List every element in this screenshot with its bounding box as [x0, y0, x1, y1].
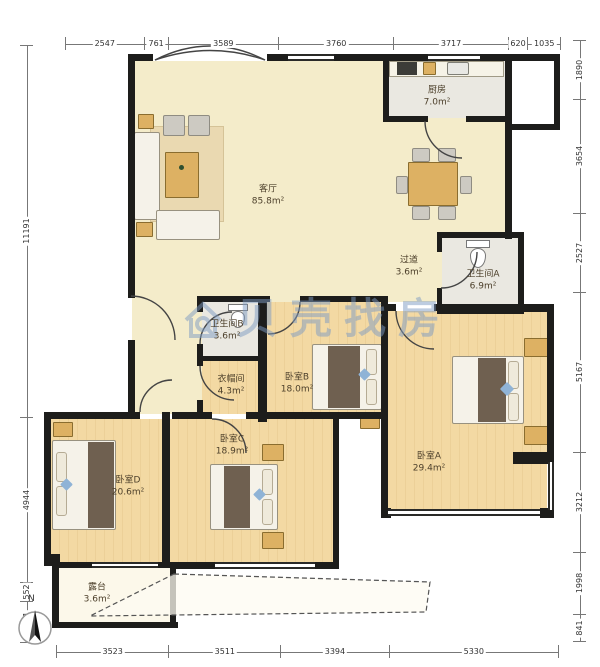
wall: [383, 54, 389, 122]
wall: [333, 412, 339, 569]
dining-chair: [438, 206, 456, 220]
room-name: 卫生间B: [210, 319, 243, 331]
dimension-segment: 2527: [573, 213, 586, 292]
room-area: 6.9m²: [466, 281, 499, 293]
wall: [44, 412, 51, 560]
dimension-segment: 1035: [527, 37, 560, 50]
dimension-strip-right: 189036542527516732121998841: [573, 40, 586, 642]
bed-pillow: [366, 379, 377, 405]
room-area: 3.6m²: [396, 267, 423, 279]
dimension-segment: 3212: [573, 452, 586, 552]
bed-blanket: [328, 346, 360, 408]
armchair: [163, 115, 185, 136]
wall: [518, 232, 524, 314]
wall: [388, 116, 428, 122]
wall: [258, 296, 267, 422]
dimension-segment: 3394: [280, 645, 388, 658]
wall: [44, 412, 140, 419]
sofa-long: [134, 132, 160, 220]
room-area: 3.6m²: [84, 594, 111, 606]
room-area: 85.8m²: [252, 196, 284, 208]
dimension-value: 2547: [93, 40, 117, 48]
room-label-bedroom-c: 卧室C 18.9m²: [216, 434, 248, 457]
dimension-segment: 3589: [168, 37, 278, 50]
wall: [381, 296, 388, 428]
room-area: 29.4m²: [413, 463, 445, 475]
dimension-value: 5330: [462, 648, 486, 656]
bed-blanket: [224, 466, 250, 528]
room-name: 露台: [84, 582, 111, 594]
wall: [197, 296, 267, 302]
dining-chair: [396, 176, 408, 194]
dimension-segment: 3654: [573, 99, 586, 213]
dimension-strip-top: 25477613589376037176201035: [65, 37, 561, 50]
window: [428, 54, 480, 61]
terrace-floor: [59, 568, 170, 622]
side-table: [136, 222, 153, 237]
wall: [437, 238, 442, 252]
room-name: 过道: [396, 255, 423, 267]
dimension-value: 3394: [323, 648, 347, 656]
room-area: 7.0m²: [424, 97, 451, 109]
dining-chair: [460, 176, 472, 194]
wall: [202, 356, 258, 361]
dimension-value: 5167: [576, 360, 584, 384]
dimension-value: 1998: [576, 571, 584, 595]
wall: [466, 116, 506, 122]
dimension-segment: 1890: [573, 40, 586, 99]
room-label-bathroom-a: 卫生间A 6.9m²: [466, 269, 499, 292]
toilet-icon: [466, 240, 490, 248]
window: [288, 54, 334, 61]
room-label-closet: 衣帽间 4.3m²: [217, 374, 244, 397]
wall: [128, 54, 135, 298]
dimension-value: 4944: [23, 488, 31, 512]
dimension-segment: 2547: [65, 37, 144, 50]
dimension-segment: 3523: [56, 645, 168, 658]
nightstand: [524, 338, 548, 357]
room-name: 厨房: [424, 85, 451, 97]
dining-chair: [438, 148, 456, 162]
wall: [197, 296, 203, 312]
compass-north-label: N: [28, 594, 35, 604]
dimension-segment: 11191: [20, 45, 33, 417]
wall: [505, 54, 560, 61]
window: [215, 562, 315, 569]
room-label-hallway: 过道 3.6m²: [396, 255, 423, 278]
compass-icon: [14, 604, 60, 652]
wall: [300, 296, 383, 302]
dimension-value: 3523: [100, 648, 124, 656]
dimension-strip-bottom: 3523351133945330: [56, 645, 559, 658]
dimension-segment: 5330: [389, 645, 558, 658]
coffee-table: [165, 152, 199, 198]
dimension-segment: 620: [508, 37, 528, 50]
nightstand: [524, 426, 548, 445]
window: [548, 462, 554, 510]
bed-pillow: [508, 393, 519, 421]
floor-plan: 客厅 85.8m² 厨房 7.0m² 过道 3.6m² 卫生间A 6.9m² 卫…: [0, 0, 600, 667]
bed-pillow: [262, 499, 273, 525]
dining-chair: [412, 148, 430, 162]
room-name: 衣帽间: [217, 374, 244, 386]
dimension-value: 3654: [576, 144, 584, 168]
dimension-value: 3212: [576, 490, 584, 514]
room-area: 3.6m²: [210, 331, 243, 343]
wall: [197, 344, 203, 366]
room-name: 卧室B: [281, 372, 313, 384]
room-label-bedroom-b: 卧室B 18.0m²: [281, 372, 313, 395]
dimension-value: 3717: [439, 40, 463, 48]
sink-icon: [447, 62, 469, 75]
dimension-value: 3760: [324, 40, 348, 48]
dimension-value: 2527: [576, 240, 584, 264]
wall: [508, 124, 560, 130]
wall: [172, 412, 212, 419]
wall: [52, 622, 178, 628]
room-name: 客厅: [252, 184, 284, 196]
nightstand: [53, 422, 73, 437]
dimension-value: 3511: [213, 648, 237, 656]
wall: [554, 54, 560, 130]
dimension-segment: 3760: [278, 37, 393, 50]
room-area: 18.0m²: [281, 384, 313, 396]
wall: [333, 412, 388, 419]
room-label-bathroom-b: 卫生间B 3.6m²: [210, 319, 243, 342]
bed-blanket: [88, 442, 114, 528]
dimension-value: 3589: [211, 40, 235, 48]
dimension-segment: 4944: [20, 417, 33, 582]
wall: [434, 304, 554, 311]
dimension-value: 841: [576, 618, 584, 637]
side-table: [138, 114, 154, 129]
dimension-segment: 1998: [573, 552, 586, 615]
room-name: 卧室A: [413, 451, 445, 463]
compass: N: [14, 594, 60, 654]
dimension-value: 1035: [532, 40, 556, 48]
window: [388, 509, 540, 516]
living-corridor-floor: [132, 300, 206, 414]
room-label-living-room: 客厅 85.8m²: [252, 184, 284, 207]
dimension-strip-left: 1119149445521201: [20, 45, 33, 643]
dimension-value: 620: [508, 40, 527, 48]
wall: [381, 428, 388, 516]
room-label-bedroom-a: 卧室A 29.4m²: [413, 451, 445, 474]
room-label-bedroom-d: 卧室D 20.6m²: [112, 475, 144, 498]
wall: [437, 232, 524, 238]
dimension-value: 11191: [23, 217, 31, 246]
wall: [162, 412, 170, 568]
nightstand: [262, 444, 284, 461]
room-label-terrace: 露台 3.6m²: [84, 582, 111, 605]
room-name: 卫生间A: [466, 269, 499, 281]
dimension-segment: 841: [573, 614, 586, 641]
dimension-segment: 3511: [168, 645, 280, 658]
wall: [170, 568, 176, 626]
dimension-value: 1890: [576, 58, 584, 82]
dimension-segment: 761: [144, 37, 168, 50]
wall: [381, 304, 396, 311]
dimension-segment: 3717: [393, 37, 507, 50]
wall: [246, 412, 339, 419]
kitchen-appliance: [423, 62, 436, 75]
window: [92, 562, 158, 568]
dimension-segment: 5167: [573, 292, 586, 452]
room-name: 卧室D: [112, 475, 144, 487]
stove-icon: [397, 62, 417, 75]
room-name: 卧室C: [216, 434, 248, 446]
dimension-value: 761: [146, 40, 165, 48]
wall: [128, 340, 135, 419]
nightstand: [262, 532, 284, 549]
dining-chair: [412, 206, 430, 220]
room-area: 18.9m²: [216, 446, 248, 458]
bed-pillow: [262, 469, 273, 495]
armchair: [188, 115, 210, 136]
room-label-kitchen: 厨房 7.0m²: [424, 85, 451, 108]
room-area: 4.3m²: [217, 386, 244, 398]
toilet-icon: [228, 304, 248, 311]
wall: [505, 54, 512, 239]
room-area: 20.6m²: [112, 487, 144, 499]
dining-table: [408, 162, 458, 206]
sofa-short: [156, 210, 220, 240]
wall: [547, 304, 554, 464]
